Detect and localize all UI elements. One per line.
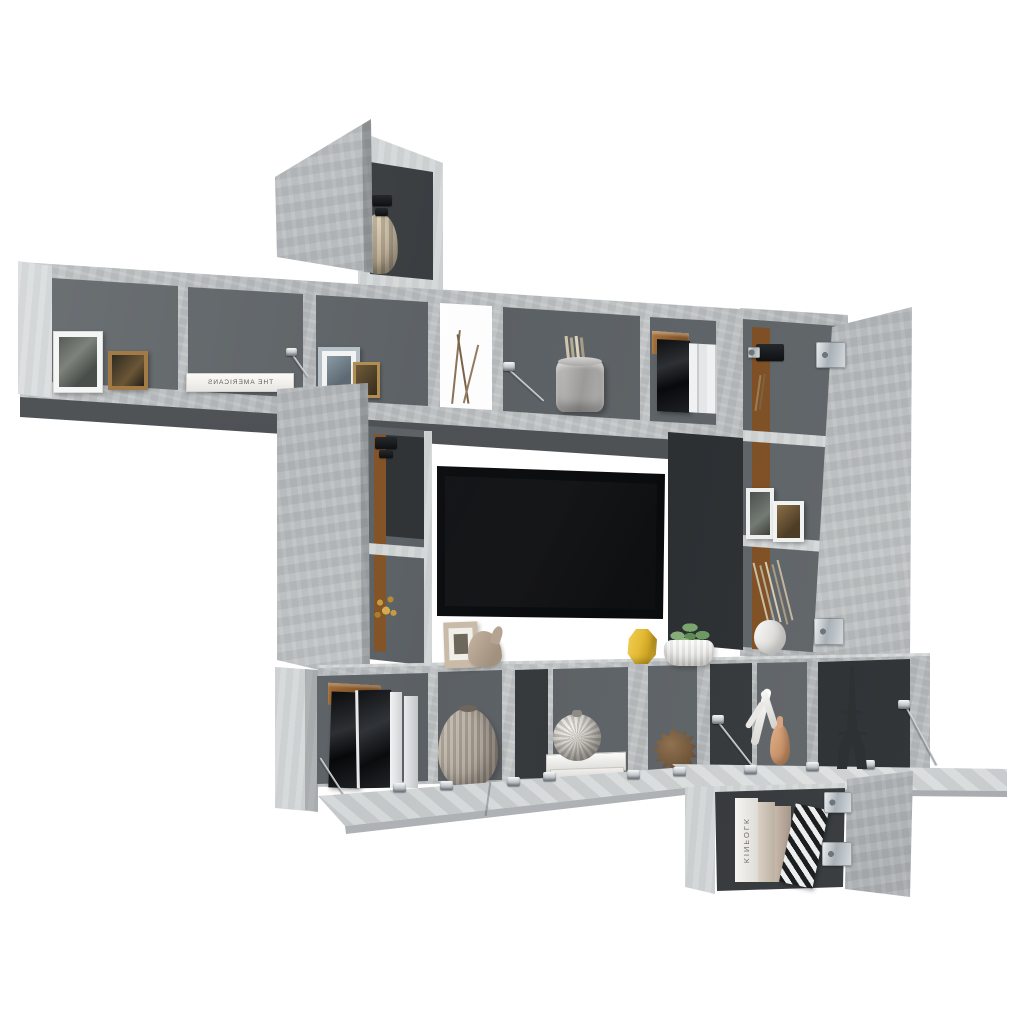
door-hinge — [816, 342, 846, 368]
frame-art — [59, 337, 97, 387]
taupe-ribbed-vase — [438, 708, 498, 789]
door-hinge — [824, 792, 852, 813]
frame-art — [454, 634, 469, 654]
vase-mouth — [459, 705, 477, 712]
beige-sculpture-ear — [489, 625, 504, 645]
door-hinge — [375, 437, 397, 449]
picture-frame-small — [746, 488, 774, 539]
frame-art — [112, 355, 144, 386]
golden-dried-flowers — [371, 593, 401, 625]
white-book — [404, 696, 418, 788]
door-hinge — [375, 208, 388, 216]
book-spine-title: KINFOLK — [742, 817, 751, 863]
door-latch — [507, 777, 520, 786]
flat-book-title: THE AMERICANS — [207, 379, 273, 386]
white-books — [689, 343, 717, 413]
black-folder — [355, 690, 393, 789]
white-vase — [754, 620, 786, 654]
picture-frame-amber — [108, 351, 148, 390]
white-book — [390, 692, 402, 788]
door-hinge — [822, 842, 852, 866]
door-latch — [393, 783, 406, 792]
frame-art — [750, 492, 770, 535]
door-hinge — [372, 195, 392, 206]
door-latch — [673, 767, 686, 776]
door-latch — [806, 762, 819, 771]
door-hinge — [748, 347, 760, 358]
stay-clip — [286, 348, 297, 356]
door-latch — [543, 772, 556, 781]
stay-clip — [503, 362, 515, 371]
eiffel-crossbar — [838, 732, 866, 735]
sphere-ornament-top — [572, 710, 582, 717]
door-hinge — [756, 344, 784, 361]
book-spine-white: KINFOLK — [735, 798, 758, 882]
peach-bud-vase-neck — [777, 716, 783, 728]
eiffel-silhouette — [834, 666, 870, 769]
door-hinge — [814, 618, 844, 645]
door-latch — [744, 765, 757, 774]
picture-frame-botanical — [53, 331, 103, 393]
door-latch — [440, 781, 453, 790]
black-folder — [657, 339, 690, 413]
sphere-ornament — [553, 714, 601, 761]
ceramic-crock — [556, 360, 604, 412]
door-latch — [627, 770, 640, 779]
ceramic-crock-rim — [558, 357, 602, 366]
frame-art — [327, 356, 351, 389]
stay-clip — [898, 700, 910, 709]
eiffel-tower-model — [834, 666, 870, 769]
stay-clip — [712, 715, 724, 724]
picture-frame-small — [773, 501, 804, 542]
frame-art — [777, 505, 800, 538]
book-spine-beige — [758, 802, 775, 882]
door-hinge — [379, 450, 393, 458]
eiffel-crossbar — [843, 711, 861, 713]
white-plant-pot — [664, 640, 714, 666]
product-photo-tv-wall-unit: THE AMERICANS — [0, 0, 1024, 1024]
